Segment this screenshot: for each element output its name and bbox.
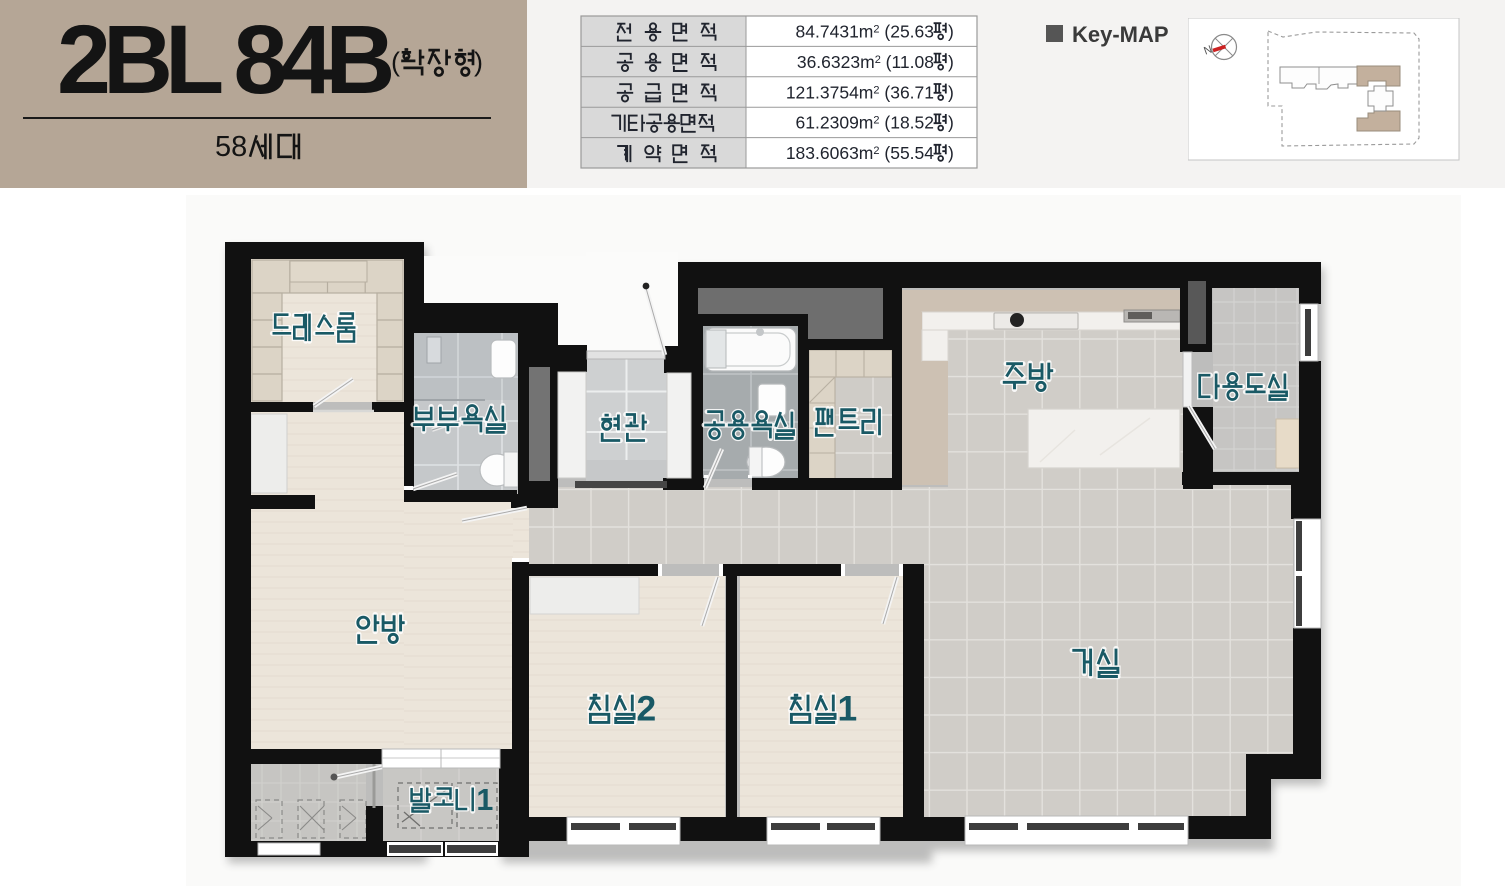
svg-text:1: 1 (476, 783, 493, 817)
svg-text:2: 2 (636, 689, 656, 729)
svg-text:1: 1 (837, 689, 857, 729)
